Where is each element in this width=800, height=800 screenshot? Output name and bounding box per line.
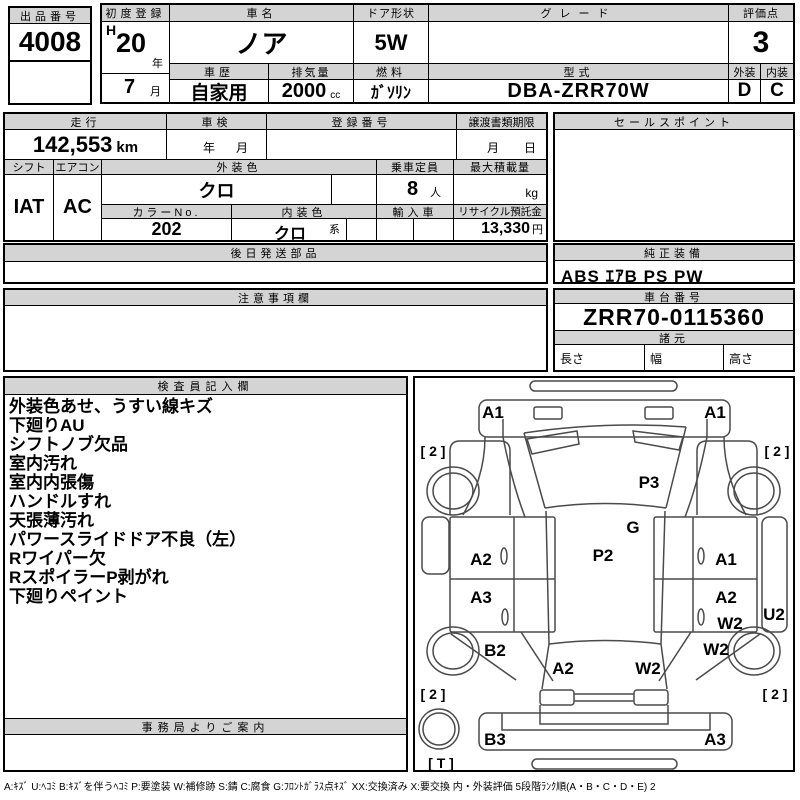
status-table: 走行 142,553 km 車検 年 月 登録番号 譲渡書類期限 月 日 シフト… xyxy=(3,112,548,242)
max-load-value: kg xyxy=(454,175,546,205)
car-outline xyxy=(419,381,787,769)
note-line: 天張薄汚れ xyxy=(9,511,402,530)
roof-right-edge xyxy=(661,511,665,644)
note-line: パワースライドドア不良（左） xyxy=(9,530,402,549)
inspector-label: 検査員記入欄 xyxy=(5,378,406,395)
tire-depth-label: [ 2 ] xyxy=(765,443,790,459)
mileage-value: 142,553 km xyxy=(5,130,167,160)
grade-value xyxy=(429,22,729,64)
import-label: 輸入車 xyxy=(377,205,454,219)
caution-box: 注意事項欄 xyxy=(3,288,548,372)
recycle-label: リサイクル預託金 xyxy=(454,205,546,219)
roof-left-edge xyxy=(546,511,549,644)
sales-point-label: セールスポイント xyxy=(555,114,793,130)
aircon-value: AC xyxy=(54,175,102,240)
shaken-value: 年 月 xyxy=(167,130,267,160)
int-color-extra-cell xyxy=(347,219,377,240)
front-left-tire xyxy=(427,467,479,515)
door-handle xyxy=(501,548,507,564)
score-value: 3 xyxy=(729,22,793,64)
oem-equipment-box: 純正装備 ABS ｴｱB PS PW xyxy=(553,243,795,284)
capacity-number: 8 xyxy=(407,178,418,201)
first-reg-month-unit: 月 xyxy=(150,83,161,99)
note-line: 下廻りペイント xyxy=(9,587,402,606)
spare-tire-label: [ T ] xyxy=(428,755,454,770)
first-reg-value: H 20 年 xyxy=(102,22,170,74)
damage-diagram-box: A1 A1 [ 2 ] [ 2 ] P3 G A2 P2 A1 A3 A2 U2… xyxy=(413,376,795,772)
chassis-box: 車台番号 ZRR70-0115360 諸元 長さ 幅 高さ xyxy=(553,288,795,372)
first-reg-era: H xyxy=(106,22,116,38)
recycle-unit: 円 xyxy=(532,221,543,237)
transfer-deadline-value: 月 日 xyxy=(457,130,546,160)
rear-bumper xyxy=(532,759,677,769)
aircon-label: エアコン xyxy=(54,160,102,175)
rear-left-tire xyxy=(427,627,479,675)
ext-color-extra-cell xyxy=(332,175,377,205)
displacement-unit: cc xyxy=(330,90,340,101)
hood-vent-left xyxy=(534,407,562,419)
oem-equipment-label: 純正装備 xyxy=(555,245,793,261)
tire-depth-label: [ 2 ] xyxy=(421,686,446,702)
int-color-suffix: 系 xyxy=(329,221,340,237)
shaken-year-unit: 年 xyxy=(203,139,215,156)
chassis-label: 車台番号 xyxy=(555,290,793,304)
rocker-left xyxy=(422,517,449,574)
registration-value xyxy=(267,130,457,160)
lot-number: 4008 xyxy=(10,24,90,62)
damage-label: A2 xyxy=(470,550,492,569)
rear-panel xyxy=(479,713,732,750)
damage-label: A1 xyxy=(704,403,726,422)
transfer-day-unit: 日 xyxy=(524,139,536,156)
sales-point-box: セールスポイント xyxy=(553,112,795,242)
shaken-month-unit: 月 xyxy=(236,139,248,156)
shift-label: シフト xyxy=(5,160,54,175)
color-no-label: カラーNo. xyxy=(102,205,232,219)
import-cell-1 xyxy=(377,219,414,240)
score-label: 評価点 xyxy=(729,5,793,22)
note-line: 室内内張傷 xyxy=(9,473,402,492)
damage-label: A1 xyxy=(715,550,737,569)
front-bumper xyxy=(530,381,677,391)
exterior-label: 外装 xyxy=(729,64,761,80)
registration-label: 登録番号 xyxy=(267,114,457,130)
model-label: 型式 xyxy=(429,64,729,80)
shift-value: IAT xyxy=(5,175,54,240)
later-parts-box: 後日発送部品 xyxy=(3,243,548,284)
a-pillar-left-inner xyxy=(503,437,525,517)
recycle-number: 13,330 xyxy=(481,220,530,238)
import-cell-2 xyxy=(414,219,454,240)
transfer-month-unit: 月 xyxy=(487,139,499,156)
damage-code-legend: A:ｷｽﾞ U:ﾍｺﾐ B:ｷｽﾞを伴うﾍｺﾐ P:要塗装 W:補修跡 S:錆 … xyxy=(4,778,796,796)
office-label: 事務局よりご案内 xyxy=(5,718,406,735)
tail-light-right xyxy=(634,690,668,705)
first-reg-year: 20 xyxy=(116,28,146,59)
damage-label: B2 xyxy=(484,641,506,660)
first-reg-year-unit: 年 xyxy=(152,55,163,71)
exterior-grade: D xyxy=(729,80,761,102)
transfer-deadline-label: 譲渡書類期限 xyxy=(457,114,546,130)
damage-label: B3 xyxy=(484,730,506,749)
displacement-number: 2000 xyxy=(282,80,327,103)
ext-color-label: 外装色 xyxy=(102,160,377,175)
shaken-label: 車検 xyxy=(167,114,267,130)
windshield-left-edge xyxy=(524,433,545,508)
door-handle xyxy=(502,609,508,625)
windshield-bottom xyxy=(545,504,666,509)
oem-equipment-value: ABS ｴｱB PS PW xyxy=(561,262,791,282)
windshield-right-edge xyxy=(666,427,686,508)
note-line: シフトノブ欠品 xyxy=(9,435,402,454)
damage-label: A3 xyxy=(704,730,726,749)
recycle-value: 13,330 円 xyxy=(454,219,546,240)
hood-vent-right xyxy=(645,407,673,419)
grade-label: グレード xyxy=(429,5,729,22)
first-reg-label: 初度登録 xyxy=(102,5,170,22)
spec-label: 諸元 xyxy=(555,331,793,345)
lot-label: 出品番号 xyxy=(10,8,90,24)
note-line: Rワイパー欠 xyxy=(9,549,402,568)
spec-length-cell: 長さ xyxy=(555,345,645,370)
door-handle xyxy=(698,548,704,564)
inspector-notes: 外装色あせ、うすい線キズ 下廻りAU シフトノブ欠品 室内汚れ 室内内張傷 ハン… xyxy=(9,397,402,606)
int-color-name: クロ xyxy=(274,220,306,244)
note-line: 外装色あせ、うすい線キズ xyxy=(9,397,402,416)
max-load-label: 最大積載量 xyxy=(454,160,546,175)
caution-label: 注意事項欄 xyxy=(5,290,546,306)
damage-label: U2 xyxy=(763,605,785,624)
damage-label: G xyxy=(626,518,639,537)
tail-light-left xyxy=(540,690,574,705)
inspector-box: 検査員記入欄 外装色あせ、うすい線キズ 下廻りAU シフトノブ欠品 室内汚れ 室… xyxy=(3,376,408,772)
d-pillar-right-inner xyxy=(659,632,691,681)
wiper-right xyxy=(633,431,683,450)
front-fender-left xyxy=(450,441,510,515)
damage-labels: A1 A1 [ 2 ] [ 2 ] P3 G A2 P2 A1 A3 A2 U2… xyxy=(421,403,790,770)
car-name: ノア xyxy=(170,22,354,64)
a-pillar-right-inner xyxy=(685,437,707,517)
car-diagram: A1 A1 [ 2 ] [ 2 ] P3 G A2 P2 A1 A3 A2 U2… xyxy=(415,378,793,770)
tire-depth-label: [ 2 ] xyxy=(421,443,446,459)
wiper-left xyxy=(527,431,579,454)
front-right-tire xyxy=(728,467,780,515)
history-value: 自家用 xyxy=(170,80,269,102)
damage-label: A2 xyxy=(715,588,737,607)
damage-label: A1 xyxy=(482,403,504,422)
later-parts-label: 後日発送部品 xyxy=(5,245,546,262)
max-load-unit: kg xyxy=(525,186,538,200)
spare-tire xyxy=(419,709,459,749)
rear-panel-step xyxy=(502,713,710,730)
damage-label: P2 xyxy=(593,546,614,565)
front-fender-right xyxy=(697,441,757,515)
vehicle-info-table: 初度登録 H 20 年 7 月 車名 ノア ドア形状 5W グレード 評価点 3… xyxy=(100,3,795,104)
tire-depth-label: [ 2 ] xyxy=(763,686,788,702)
damage-label: W2 xyxy=(717,614,743,633)
note-line: RスポイラーP剥がれ xyxy=(9,568,402,587)
mileage-number: 142,553 xyxy=(33,132,113,158)
capacity-value: 8 人 xyxy=(377,175,454,205)
damage-label: W2 xyxy=(635,659,661,678)
spec-height-cell: 高さ xyxy=(724,345,793,370)
door-handle xyxy=(698,609,704,625)
spec-width-cell: 幅 xyxy=(645,345,724,370)
model-value: DBA-ZRR70W xyxy=(429,80,729,102)
door-shape-label: ドア形状 xyxy=(354,5,429,22)
displacement-label: 排気量 xyxy=(269,64,354,80)
displacement-value: 2000 cc xyxy=(269,80,354,102)
fuel-label: 燃料 xyxy=(354,64,429,80)
note-line: 下廻りAU xyxy=(9,416,402,435)
rear-window-top xyxy=(549,641,661,645)
note-line: 室内汚れ xyxy=(9,454,402,473)
capacity-label: 乗車定員 xyxy=(377,160,454,175)
damage-label: A3 xyxy=(470,588,492,607)
interior-label: 内装 xyxy=(761,64,793,80)
int-color-label: 内装色 xyxy=(232,205,377,219)
damage-label: P3 xyxy=(639,473,660,492)
hatch-lower xyxy=(540,705,668,724)
lot-box: 出品番号 4008 xyxy=(8,6,92,105)
note-line: ハンドルすれ xyxy=(9,492,402,511)
car-name-label: 車名 xyxy=(170,5,354,22)
int-color-value: クロ 系 xyxy=(232,219,347,240)
rear-window-right xyxy=(661,644,667,689)
chassis-number: ZRR70-0115360 xyxy=(555,304,793,331)
hood xyxy=(479,400,730,437)
damage-label: W2 xyxy=(703,640,729,659)
fuel-value: ｶﾞｿﾘﾝ xyxy=(354,80,429,102)
damage-label: A2 xyxy=(552,659,574,678)
color-no-value: 202 xyxy=(102,219,232,240)
auction-sheet: 出品番号 4008 初度登録 H 20 年 7 月 車名 ノア ドア形状 5W … xyxy=(0,0,800,800)
interior-grade: C xyxy=(761,80,793,102)
mileage-label: 走行 xyxy=(5,114,167,130)
door-shape: 5W xyxy=(354,22,429,64)
first-reg-month: 7 xyxy=(124,76,135,99)
mileage-unit: km xyxy=(116,139,138,156)
ext-color-value: クロ xyxy=(102,175,332,205)
capacity-unit: 人 xyxy=(430,184,441,200)
cowl-line xyxy=(524,425,686,433)
first-reg-month-cell: 7 月 xyxy=(102,74,170,102)
